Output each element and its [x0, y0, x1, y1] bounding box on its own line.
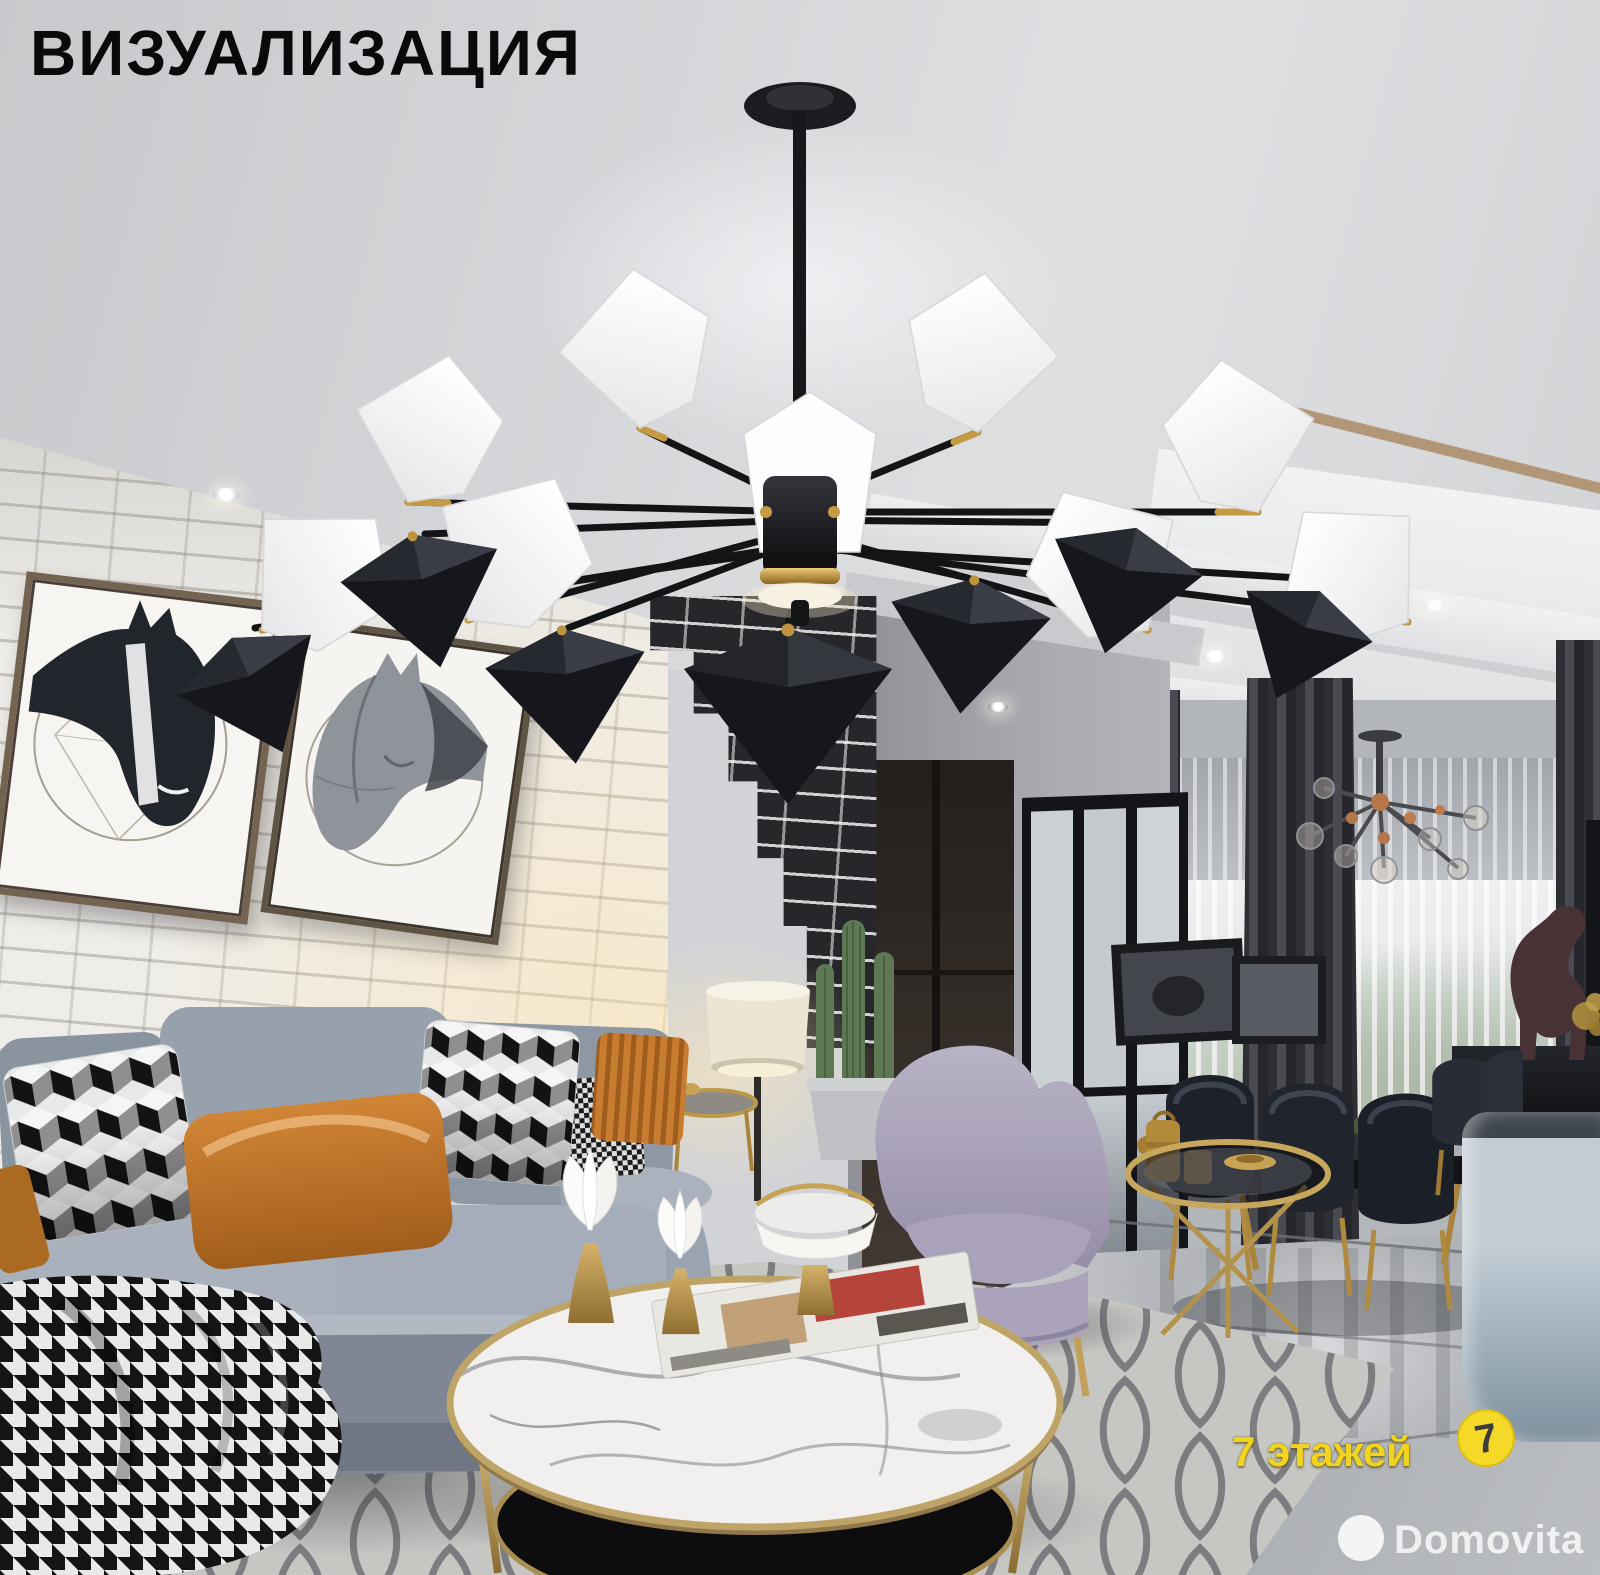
chandelier [0, 60, 1600, 860]
living-room-visualization-photo: ВИЗУАЛИЗАЦИЯ 7 этажей 7 Domovita [0, 0, 1600, 1575]
houndstooth-throw [0, 1276, 342, 1575]
page-title: ВИЗУАЛИЗАЦИЯ [30, 16, 582, 90]
media-cabinet [1462, 1112, 1600, 1442]
coffee-table-decor [505, 1118, 1005, 1390]
brand-watermark-text: Domovita [1394, 1518, 1584, 1562]
floors-logo: 7 [1456, 1408, 1516, 1468]
floors-watermark-text: 7 этажей [1232, 1428, 1412, 1475]
side-table [1122, 1128, 1334, 1346]
brand-logo-dot [1338, 1515, 1384, 1561]
lotus-candleholder [563, 1148, 617, 1323]
watermark-brand: Domovita [1394, 1518, 1584, 1563]
watermark-floors: 7 этажей [1232, 1428, 1412, 1476]
